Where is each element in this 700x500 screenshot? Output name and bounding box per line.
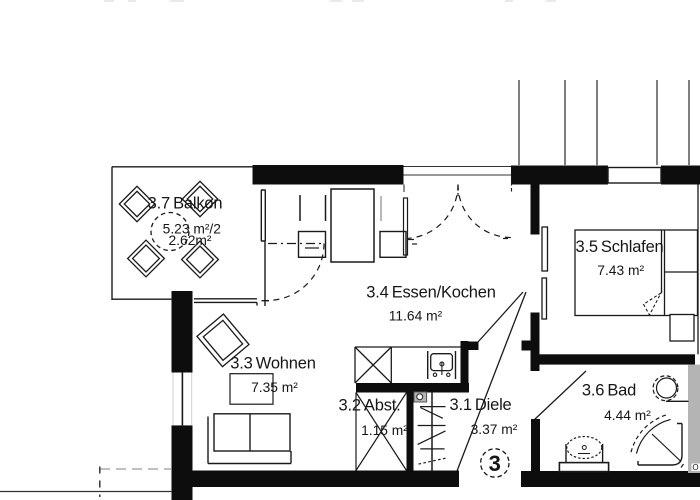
svg-text:1.15 m²: 1.15 m² (361, 423, 408, 438)
svg-text:7.35 m²: 7.35 m² (251, 380, 298, 395)
svg-text:7.43 m²: 7.43 m² (597, 263, 644, 278)
svg-text:3.1 Diele: 3.1 Diele (449, 396, 511, 414)
svg-text:3.5 Schlafen: 3.5 Schlafen (575, 238, 663, 256)
svg-text:3.6 Bad: 3.6 Bad (582, 382, 636, 400)
svg-text:3.37 m²: 3.37 m² (471, 422, 518, 437)
svg-text:3: 3 (489, 451, 501, 476)
svg-text:2.62m²: 2.62m² (169, 233, 212, 248)
svg-text:3.4 Essen/Kochen: 3.4 Essen/Kochen (366, 283, 495, 301)
svg-text:11.64 m²: 11.64 m² (389, 309, 443, 324)
svg-text:O: O (692, 463, 698, 472)
svg-text:4.44 m²: 4.44 m² (604, 408, 651, 423)
svg-text:3.7 Balkon: 3.7 Balkon (148, 195, 223, 213)
svg-text:3.2 Abst.: 3.2 Abst. (338, 397, 400, 415)
svg-text:3.3 Wohnen: 3.3 Wohnen (230, 355, 315, 373)
